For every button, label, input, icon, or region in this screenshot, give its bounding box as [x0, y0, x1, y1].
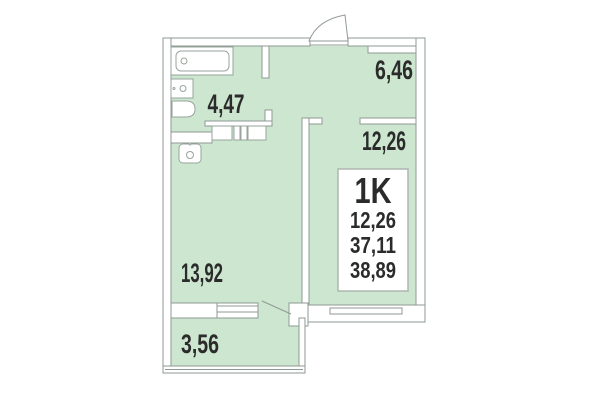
info-box: 1K 12,26 37,11 38,89 — [338, 169, 408, 291]
kitchen-sink — [179, 143, 201, 163]
unit-type-label: 1K — [355, 170, 392, 211]
area-label-bathroom: 4,47 — [208, 89, 245, 119]
area-label-balcony: 3,56 — [181, 329, 219, 359]
area-label-hallway: 6,46 — [375, 55, 413, 85]
entrance-door — [309, 15, 348, 41]
window-room — [330, 308, 402, 314]
info-area-2: 37,11 — [350, 232, 396, 258]
floor-plan-page: 6,46 4,47 12,26 13,92 3,56 1K 12,26 37,1… — [0, 0, 600, 400]
floor-plan: 6,46 4,47 12,26 13,92 3,56 1K 12,26 37,1… — [0, 0, 600, 400]
info-area-3: 38,89 — [350, 257, 396, 283]
toilet — [172, 101, 195, 117]
cabinet-row — [212, 126, 266, 140]
area-label-room: 12,26 — [362, 126, 406, 156]
window-main — [217, 306, 258, 312]
info-area-1: 12,26 — [350, 207, 396, 233]
area-label-living-kitchen: 13,92 — [181, 258, 223, 288]
bathtub — [171, 47, 233, 75]
bathroom-sink — [171, 79, 193, 98]
